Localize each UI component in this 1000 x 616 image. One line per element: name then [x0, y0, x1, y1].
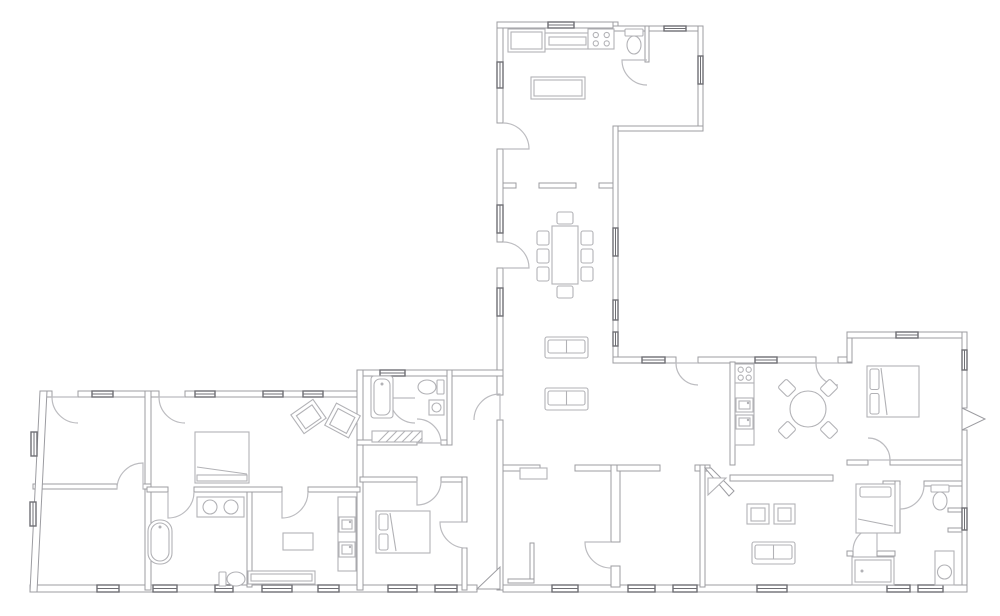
door-swing — [503, 123, 529, 149]
exterior-door-east — [962, 408, 985, 430]
built-in-bathtub — [852, 557, 894, 585]
toilet-wc — [625, 29, 643, 54]
door-swing — [159, 397, 185, 423]
window — [263, 391, 283, 397]
single-bed — [856, 484, 895, 533]
window — [757, 585, 787, 592]
door-swing — [503, 242, 529, 268]
range-hood — [545, 33, 590, 49]
window — [664, 26, 686, 31]
window — [962, 508, 967, 530]
wall-annex-bottom — [613, 126, 703, 131]
wall-niche-a — [948, 508, 962, 512]
door-swing — [282, 492, 308, 518]
window — [195, 391, 215, 397]
window — [642, 357, 665, 363]
window — [435, 585, 457, 592]
chair — [778, 379, 796, 397]
door-swing — [585, 542, 611, 568]
window — [92, 391, 113, 397]
wall-suite-mid-a — [847, 551, 853, 556]
double-vanity — [197, 497, 244, 517]
wall-roomA-right-b — [611, 566, 620, 587]
window — [887, 585, 910, 592]
window — [497, 62, 503, 88]
toilet-central — [418, 380, 444, 394]
chair — [820, 379, 838, 397]
window — [497, 288, 503, 316]
kitchen-island — [531, 77, 585, 99]
bench — [248, 571, 315, 584]
toilet-east — [931, 485, 949, 510]
armchair-west-2 — [325, 403, 361, 438]
window — [388, 585, 417, 592]
counter-2 — [735, 383, 754, 445]
wall-living-top — [730, 475, 833, 481]
window — [896, 332, 918, 338]
window — [755, 357, 777, 363]
door-swing — [900, 485, 924, 509]
chair — [820, 421, 838, 439]
door-swing — [52, 397, 78, 423]
window — [698, 56, 703, 84]
door-swing — [440, 522, 466, 548]
sofa-1 — [545, 337, 588, 358]
wall-wing-left-d — [497, 420, 503, 590]
window — [613, 332, 618, 346]
chair — [778, 421, 796, 439]
window — [497, 205, 503, 233]
door-swing — [168, 492, 194, 518]
sink-unit-2 — [736, 415, 753, 429]
wall-partition487-b — [194, 487, 282, 492]
wall-wc-partition — [645, 26, 649, 62]
wall-bath1-right — [447, 370, 452, 445]
window — [262, 585, 292, 592]
utility-table — [283, 533, 313, 550]
double-bed-south — [376, 511, 430, 553]
utility-counter — [338, 497, 356, 571]
door-swing — [390, 398, 415, 423]
door-swing — [474, 394, 500, 420]
doors-layer — [52, 60, 985, 589]
wall-kitchen-dining-c — [599, 183, 613, 188]
appliance-1 — [339, 517, 355, 532]
sink-central — [429, 400, 444, 415]
wall-tower-hall-a — [847, 460, 868, 465]
window — [318, 585, 339, 592]
wall-kitchen-dining-b — [539, 183, 576, 188]
window — [628, 585, 655, 592]
window — [673, 585, 697, 592]
window — [31, 432, 37, 456]
window — [613, 228, 618, 256]
armchair-west-1 — [291, 399, 326, 433]
sink-unit-1 — [736, 398, 753, 412]
window — [303, 391, 323, 397]
freestanding-bathtub — [148, 520, 172, 564]
wall-bedroom3-right — [895, 481, 900, 533]
wall-kitchen-dining-a — [503, 183, 516, 188]
cabinet-roomA — [520, 468, 547, 479]
floor-plan-page — [0, 0, 1000, 616]
wall-partition487-c — [308, 487, 360, 492]
wall-roomA-right-a — [611, 465, 620, 542]
window — [918, 585, 943, 592]
appliance-2 — [339, 542, 355, 557]
window — [97, 585, 119, 592]
wall-kitchen2-left — [730, 362, 735, 465]
wall-tower-hall-b — [890, 460, 962, 465]
window — [548, 22, 574, 28]
wall-partition487-a — [147, 487, 168, 492]
door-swing — [868, 438, 890, 460]
window — [613, 300, 618, 320]
window — [153, 585, 177, 592]
window — [552, 585, 578, 592]
wall-roomB-right — [700, 465, 705, 587]
bathtub-central — [371, 376, 393, 418]
door-swing — [676, 363, 698, 385]
window — [962, 350, 967, 370]
sofa-2 — [545, 388, 588, 410]
door-swing — [417, 481, 441, 505]
wall-left-slanted-wall — [30, 391, 47, 592]
wall-suite-mid-b — [877, 551, 895, 556]
kitchen-counter — [508, 29, 545, 52]
wall-left-partition-a — [33, 484, 117, 489]
wall-bedroom2-right-a — [462, 477, 467, 522]
wall-niche-b — [948, 528, 962, 532]
double-bed-tower — [867, 366, 919, 417]
window — [30, 502, 36, 526]
shower-vanity — [935, 551, 954, 585]
wall-roomB-top-a — [617, 465, 660, 471]
wall-roomA-closet-a — [530, 543, 534, 583]
armchair-east-2 — [774, 504, 795, 524]
sofa-east — [752, 542, 795, 564]
door-swing — [117, 463, 143, 489]
door-swing — [622, 60, 647, 85]
wall-roomA-closet-b — [508, 579, 534, 583]
wall-mid-top — [357, 370, 503, 376]
wall-bedroom2-right-b — [462, 548, 467, 590]
window — [380, 370, 405, 376]
armchair-east-1 — [747, 504, 769, 524]
round-dining-table — [778, 379, 838, 439]
toilet-west — [219, 572, 245, 586]
double-bed-west — [195, 432, 249, 483]
entrance-door-south — [477, 567, 500, 589]
cooktop — [588, 29, 614, 49]
wall-bedroom2-top-a — [360, 477, 417, 482]
floor-plan-canvas — [0, 0, 1000, 616]
cooktop-2 — [735, 364, 754, 383]
shower-mat — [372, 431, 422, 442]
furniture-layer — [148, 29, 954, 586]
dining-table — [537, 212, 593, 298]
